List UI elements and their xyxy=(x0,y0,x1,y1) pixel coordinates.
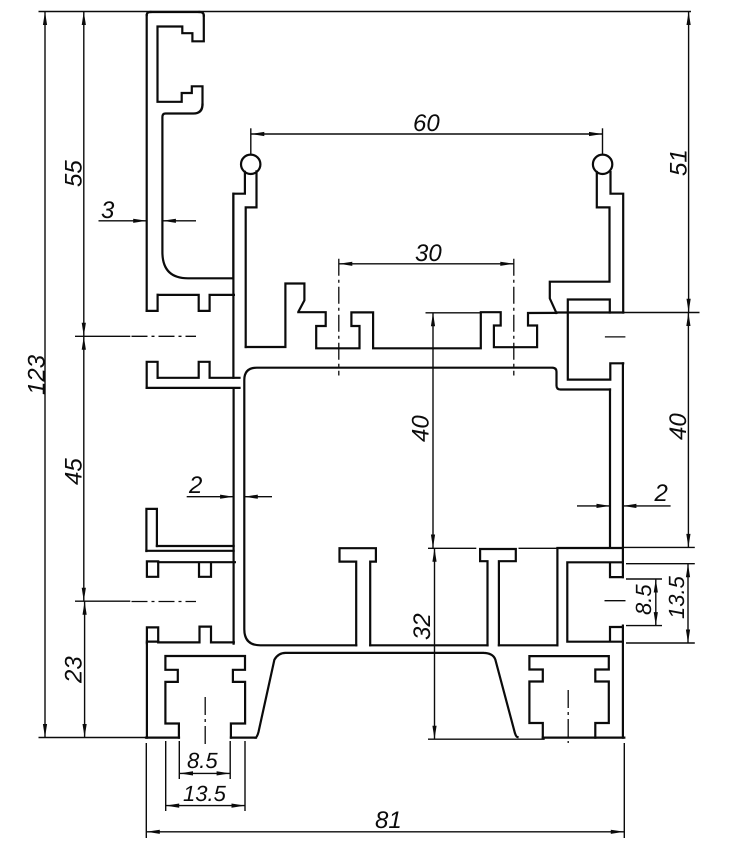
svg-text:55: 55 xyxy=(61,160,88,187)
svg-text:60: 60 xyxy=(413,110,440,137)
svg-text:23: 23 xyxy=(61,656,88,684)
svg-text:2: 2 xyxy=(188,472,202,499)
svg-text:32: 32 xyxy=(409,613,436,640)
svg-text:8.5: 8.5 xyxy=(631,584,656,615)
svg-text:2: 2 xyxy=(654,480,668,507)
svg-text:45: 45 xyxy=(61,458,88,485)
svg-text:13.5: 13.5 xyxy=(664,575,689,619)
svg-text:40: 40 xyxy=(665,413,692,440)
svg-text:123: 123 xyxy=(24,354,51,395)
svg-text:51: 51 xyxy=(666,149,693,176)
svg-text:81: 81 xyxy=(375,807,402,834)
svg-text:13.5: 13.5 xyxy=(183,781,227,806)
svg-text:8.5: 8.5 xyxy=(187,748,218,773)
svg-text:30: 30 xyxy=(415,240,442,267)
svg-text:40: 40 xyxy=(408,415,435,442)
svg-text:3: 3 xyxy=(101,197,115,224)
